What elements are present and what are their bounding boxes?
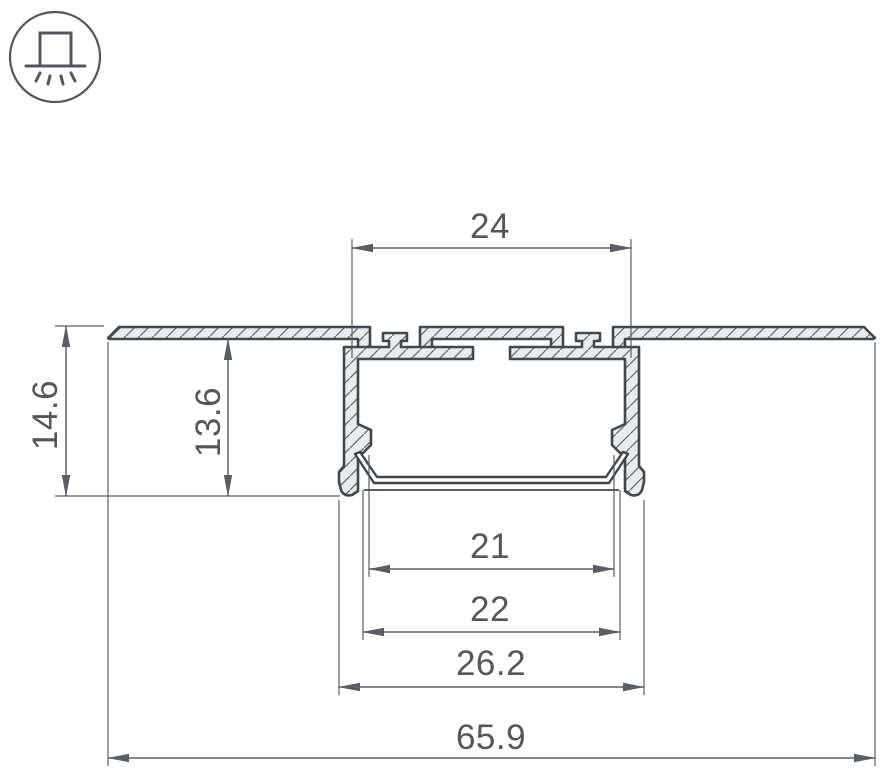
profile-cross-section-drawing: 24 14.6 13.6 21 22 [0,0,880,768]
diffuser-plate [355,452,628,483]
icon-fixture-box [40,33,71,66]
technical-drawing-canvas: 24 14.6 13.6 21 22 [0,0,880,768]
side-wall-left [339,333,473,495]
dimension-label: 24 [470,207,510,246]
ceiling-flange-left [108,327,370,351]
dimension-label: 21 [470,527,510,566]
dimension-label: 13.6 [189,387,228,457]
dimension-label: 14.6 [26,380,65,450]
dimension-diffuser-width: 21 [369,455,614,577]
icon-circle [10,12,100,102]
recessed-mount-icon [10,12,100,102]
dimension-label: 26.2 [456,644,526,683]
dimension-overall-height: 14.6 [26,326,340,496]
dimension-label: 22 [470,590,510,629]
dimension-recess-depth: 13.6 [189,339,228,496]
ceiling-flange-right [613,327,875,351]
dimensions: 24 14.6 13.6 21 22 [26,207,875,766]
side-wall-right [510,333,644,495]
icon-light-rays [36,73,75,84]
dimension-label: 65.9 [456,718,526,757]
